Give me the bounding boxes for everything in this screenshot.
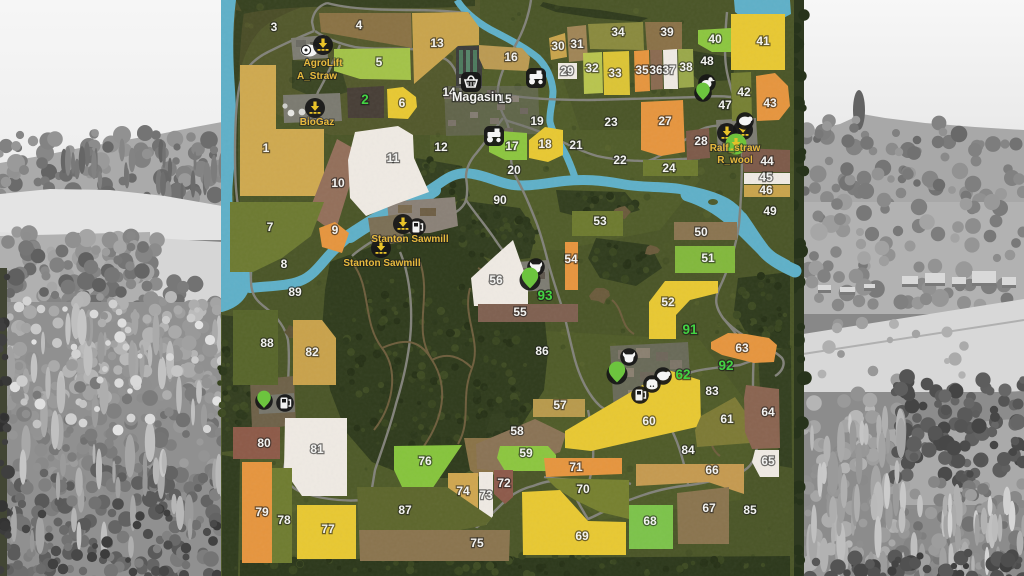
svg-text:R_wool: R_wool	[717, 155, 753, 166]
svg-text:AgroLift: AgroLift	[304, 58, 344, 69]
svg-text:Magasin: Magasin	[452, 90, 502, 104]
svg-text:Stanton Sawmill: Stanton Sawmill	[343, 258, 420, 269]
svg-text:BioGaz: BioGaz	[300, 117, 334, 128]
svg-text:Ralf_straw: Ralf_straw	[710, 143, 761, 154]
svg-text:A_Straw: A_Straw	[297, 71, 337, 82]
svg-text:Stanton Sawmill: Stanton Sawmill	[371, 234, 448, 245]
